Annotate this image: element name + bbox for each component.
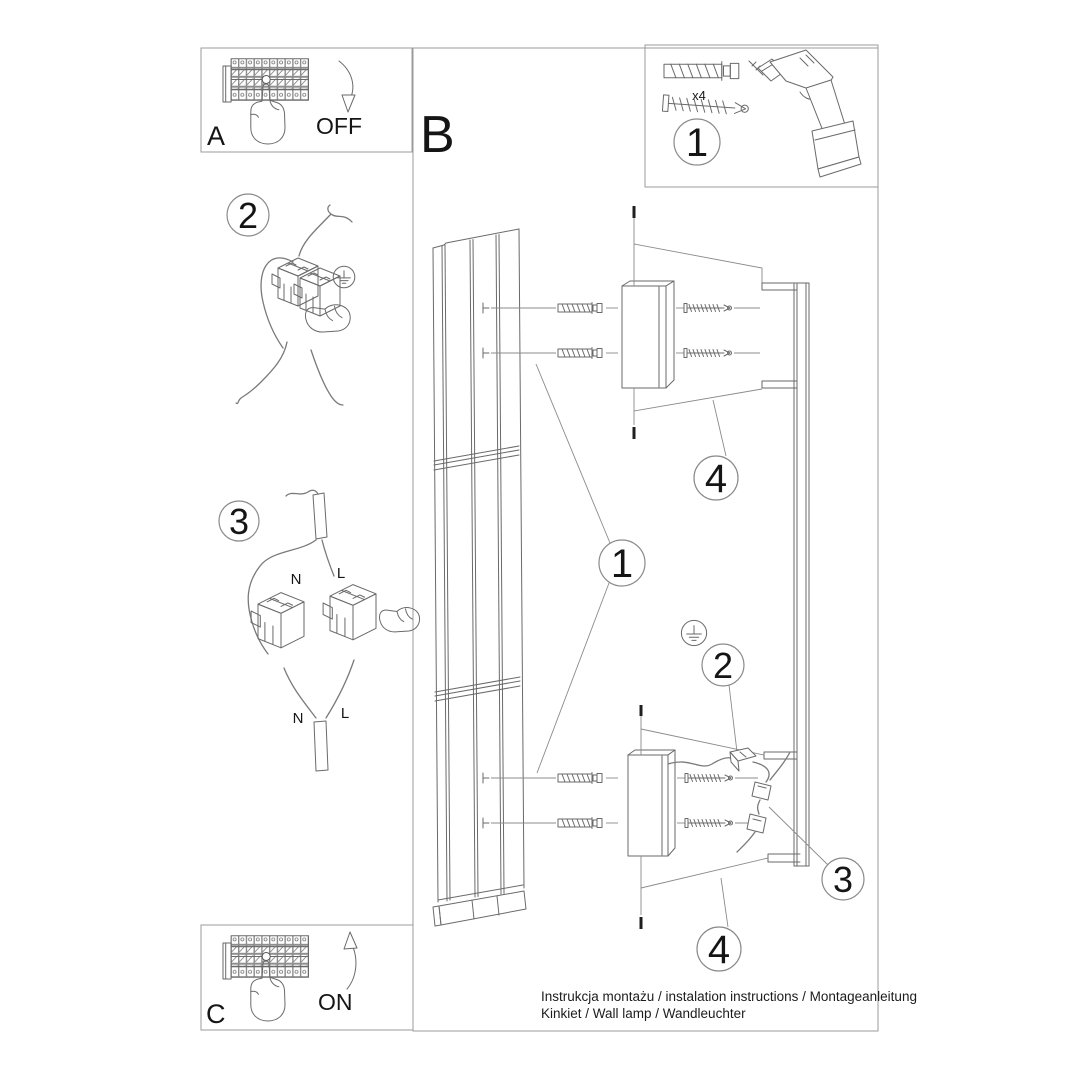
manual-drawing: A OFF x4 1 [0,0,1080,1080]
panel-a-letter: A [207,121,225,151]
curved-arrow-up-icon [344,932,357,989]
step-4-top-badge: 4 [694,400,738,501]
panel-step2: 2 [227,194,355,405]
mounting-bracket-top [622,206,762,439]
plug-connector-icon [752,782,771,800]
panel-b-frame [413,48,878,1031]
wall-plug-icon [664,62,739,81]
wall-plug-icon [558,773,602,784]
pressing-hand-icon [379,608,419,632]
step-2-badge: 2 [227,194,269,236]
footer-line1: Instrukcja montażu / instalation instruc… [541,989,917,1004]
panel-c-state-label: ON [318,989,353,1015]
panel-step3: 3 N L N L [219,490,420,771]
step-3-main-number: 3 [833,859,853,900]
screw-icon [685,819,733,828]
power-drill-icon [749,50,861,177]
wall-rail [762,283,809,866]
plug-connector-icon [747,814,766,833]
step-1-main-number: 1 [611,542,633,586]
quick-connector-icon [730,748,756,771]
step-2-main-number: 2 [713,645,733,686]
wall-plug-icon [558,303,602,314]
parts-box-content: x4 1 [662,50,861,177]
step-4-top-number: 4 [705,457,727,501]
mounting-bracket-bottom [628,705,768,929]
panel-c: C ON [206,932,357,1029]
screw-icon [684,349,732,358]
lamp-wiring [668,748,790,852]
step-1-badge: 1 [674,119,720,165]
circuit-breaker-icon [223,936,309,979]
panel-a-state-label: OFF [316,113,362,139]
screw-icon [684,304,732,313]
screw-icon [685,774,733,783]
live-label-top: L [337,565,345,582]
wall-plug-icon [558,818,602,829]
step-4-bottom-badge: 4 [697,878,741,972]
neutral-label-bottom: N [293,710,304,727]
footer-line2: Kinkiet / Wall lamp / Wandleuchter [541,1006,746,1021]
curved-arrow-down-icon [339,61,355,112]
step-2-main-badge: 2 [702,644,744,752]
terminal-connector-icon [323,585,376,640]
panel-b-letter: B [420,106,455,164]
step-3-badge: 3 [219,501,259,542]
step-1-number: 1 [686,121,708,165]
step-2-number: 2 [238,195,258,236]
step3-wires [248,490,354,771]
step-3-number: 3 [229,501,249,542]
footer: Instrukcja montażu / instalation instruc… [541,989,917,1021]
step-4-bottom-number: 4 [708,928,730,972]
step-1-main-badge: 1 [536,364,645,773]
ground-symbol-icon [681,620,706,645]
live-label-bottom: L [341,705,349,722]
ground-symbol-icon [333,266,355,288]
neutral-label-top: N [291,571,302,588]
instruction-sheet: A OFF x4 1 [0,0,1080,1080]
circuit-breaker-icon [223,59,309,102]
lamp-profile [433,229,526,926]
terminal-connector-icon [251,593,304,648]
panel-b: B [420,106,864,972]
panel-a: A OFF [207,59,362,151]
wall-plug-icon [558,348,602,359]
panel-c-letter: C [206,999,226,1029]
pressing-hand-icon [305,305,350,332]
